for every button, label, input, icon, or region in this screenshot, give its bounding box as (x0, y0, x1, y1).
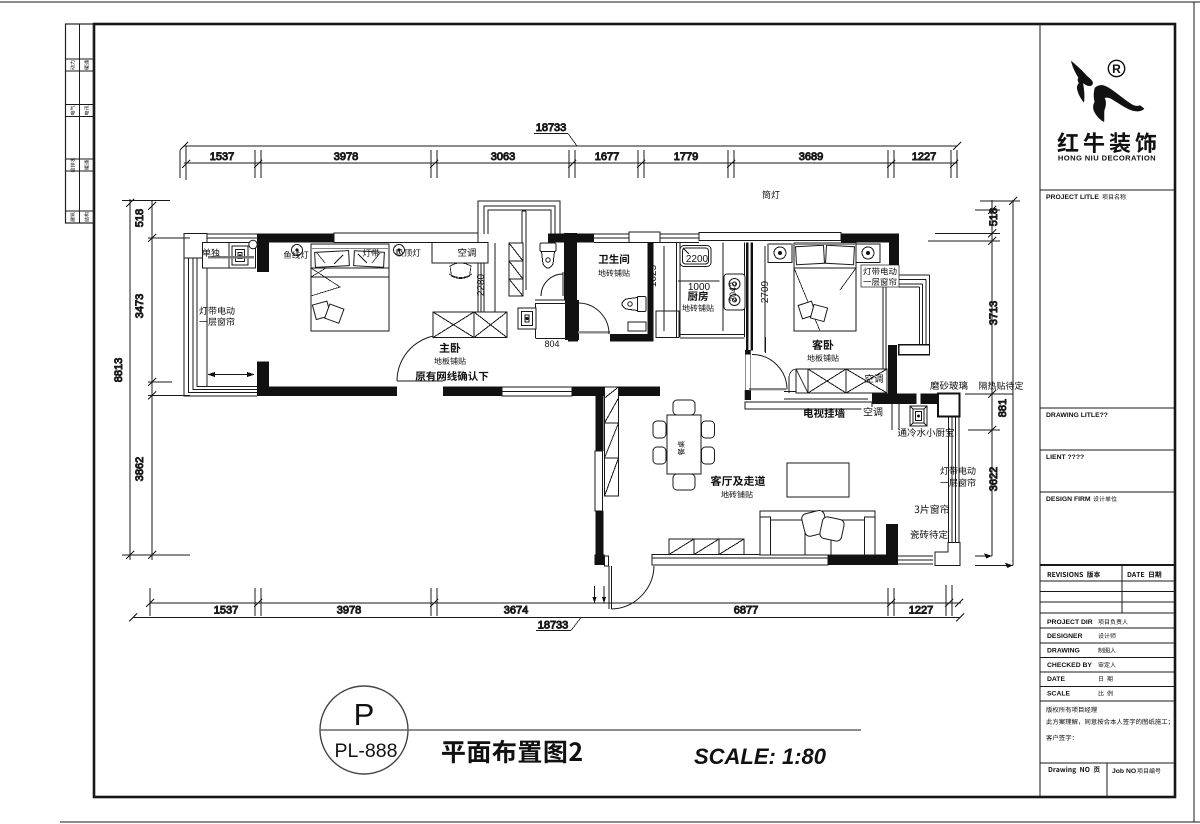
svg-text:PROJECT LITLE: PROJECT LITLE (1046, 194, 1099, 201)
svg-text:1677: 1677 (595, 151, 619, 163)
svg-text:DATE: DATE (1047, 676, 1065, 683)
svg-text:3674: 3674 (504, 605, 528, 617)
svg-text:DESIGN FIRM: DESIGN FIRM (1046, 496, 1091, 503)
svg-text:6877: 6877 (734, 605, 758, 617)
svg-text:DESIGNER: DESIGNER (1047, 633, 1083, 640)
svg-text:2280: 2280 (476, 273, 487, 296)
svg-text:518: 518 (134, 209, 146, 227)
svg-text:518: 518 (988, 208, 1000, 226)
svg-text:18733: 18733 (538, 620, 569, 632)
svg-text:1537: 1537 (210, 151, 234, 163)
svg-text:3978: 3978 (337, 605, 361, 617)
svg-text:PROJECT DIR: PROJECT DIR (1047, 619, 1093, 626)
svg-text:1779: 1779 (674, 151, 698, 163)
svg-text:2709: 2709 (760, 280, 771, 303)
svg-text:3689: 3689 (799, 151, 823, 163)
svg-text:PL-888: PL-888 (335, 740, 398, 762)
svg-text:HONG NIU DECORATION: HONG NIU DECORATION (1058, 154, 1156, 163)
svg-text:3978: 3978 (334, 151, 358, 163)
svg-text:3713: 3713 (988, 301, 1000, 325)
svg-text:8813: 8813 (113, 358, 125, 382)
svg-text:804: 804 (544, 339, 559, 349)
svg-text:SCALE: 1:80: SCALE: 1:80 (694, 744, 827, 769)
svg-text:1537: 1537 (214, 605, 238, 617)
svg-text:LIENT ????: LIENT ???? (1046, 454, 1084, 461)
svg-text:3473: 3473 (134, 294, 146, 318)
svg-text:DRAWING LITLE??: DRAWING LITLE?? (1046, 412, 1108, 419)
svg-text:3862: 3862 (134, 457, 146, 481)
svg-text:18733: 18733 (536, 122, 567, 134)
svg-text:1227: 1227 (912, 151, 936, 163)
svg-text:2200: 2200 (686, 254, 709, 265)
svg-text:R: R (1112, 62, 1121, 76)
svg-text:1625: 1625 (648, 264, 659, 287)
svg-text:1000: 1000 (688, 282, 711, 293)
svg-text:DRAWING: DRAWING (1047, 648, 1080, 655)
svg-text:CHECKED BY: CHECKED BY (1047, 662, 1092, 669)
svg-text:P: P (354, 697, 375, 732)
svg-text:Job NO: Job NO (1112, 768, 1136, 775)
svg-text:1227: 1227 (909, 605, 933, 617)
svg-text:3063: 3063 (491, 151, 515, 163)
svg-text:2042: 2042 (728, 282, 738, 302)
svg-text:3622: 3622 (988, 467, 1000, 491)
svg-text:881: 881 (997, 399, 1009, 417)
svg-text:SCALE: SCALE (1047, 691, 1071, 698)
